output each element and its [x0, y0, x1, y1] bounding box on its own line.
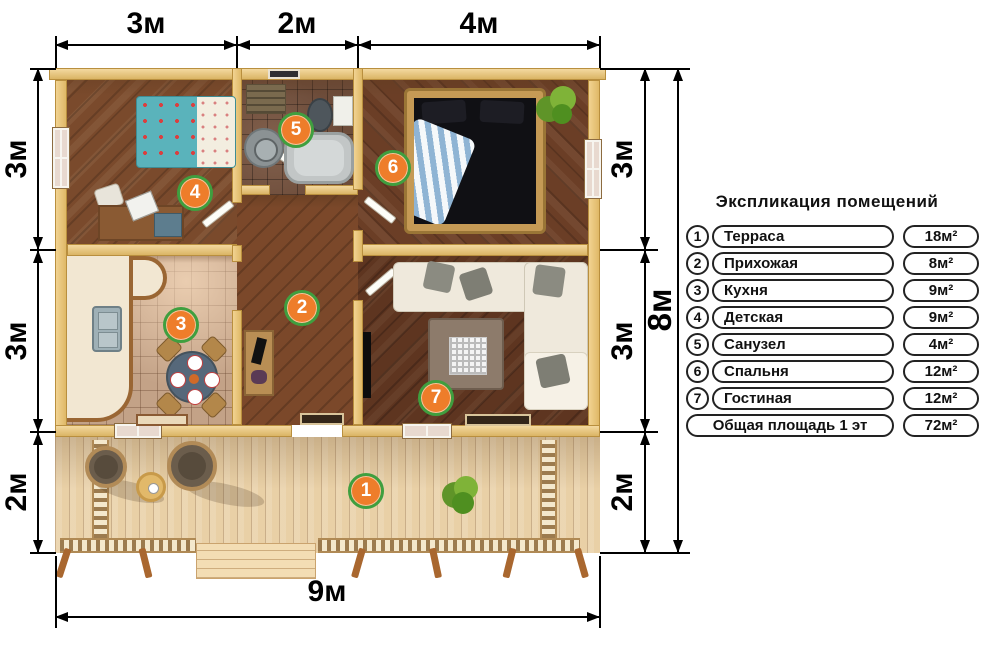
- wall-outer-bottom-right: [342, 425, 600, 437]
- plate: [187, 355, 203, 371]
- plate: [187, 389, 203, 405]
- wall-outer-bottom-left: [55, 425, 292, 437]
- legend-room-name: Терраса: [712, 225, 894, 248]
- wall-center-right-a: [353, 68, 363, 190]
- dining-table: [166, 351, 218, 403]
- dim-left-2m: [37, 433, 39, 552]
- coffee-table: [428, 318, 504, 390]
- sink-basin: [98, 312, 118, 330]
- dim-left-3m-b: [37, 251, 39, 431]
- dim-label-left-3m-a: 3м: [0, 140, 34, 179]
- legend-panel: Экспликация помещений 1 Терраса 18м² 2 П…: [686, 192, 982, 437]
- bathroom-vent: [268, 69, 300, 79]
- children-desk: [98, 205, 184, 241]
- legend-row-number: 2: [686, 252, 709, 275]
- wall-bathroom-bottom-b: [305, 185, 358, 195]
- room-badge-bedroom: 6: [375, 150, 411, 186]
- bathroom-shelf: [246, 84, 286, 114]
- dim-label-right-3m-a: 3м: [606, 140, 640, 179]
- legend-room-name: Спальня: [712, 360, 894, 383]
- double-bed-frame: [404, 88, 546, 234]
- dim-label-top-4m: 4м: [460, 7, 499, 41]
- terrace-steps: [196, 543, 316, 579]
- pillow: [479, 100, 524, 124]
- double-bed-bedding: [414, 98, 536, 224]
- legend-room-area: 4м²: [903, 333, 979, 356]
- dim-label-top-2m: 2м: [278, 7, 317, 41]
- dim-bottom-9m: [56, 616, 599, 618]
- printer: [154, 213, 182, 237]
- terrace-railing-right: [540, 440, 557, 538]
- legend-room-name: Санузел: [712, 333, 894, 356]
- tv: [363, 332, 371, 398]
- dim-label-top-3m: 3м: [127, 7, 166, 41]
- legend-row-number: 6: [686, 360, 709, 383]
- window-living-south: [403, 424, 451, 438]
- cloth: [251, 370, 267, 384]
- legend-row: 7 Гостиная 12м²: [686, 387, 982, 410]
- legend-row-number: 7: [686, 387, 709, 410]
- legend-room-area: 9м²: [903, 306, 979, 329]
- pillow: [421, 99, 466, 124]
- legend-title: Экспликация помещений: [686, 192, 968, 212]
- window-children-left: [53, 128, 69, 188]
- legend-row: 5 Санузел 4м²: [686, 333, 982, 356]
- wall-mid-right: [358, 244, 588, 256]
- room-badge-living: 7: [418, 380, 454, 416]
- dim-right-2m: [644, 433, 646, 552]
- legend-room-area: 9м²: [903, 279, 979, 302]
- floor-plan-page: 1 2 3 4 5 6 7 3м 2м 4м 3м 3м 2м 3м 3м 2м…: [0, 0, 1000, 649]
- legend-room-area: 12м²: [903, 387, 979, 410]
- legend-total-row: Общая площадь 1 эт 72м²: [686, 414, 982, 437]
- window-bedroom-right: [585, 140, 601, 198]
- room-badge-children: 4: [177, 175, 213, 211]
- children-bed: [136, 96, 236, 168]
- room-badge-bathroom: 5: [278, 112, 314, 148]
- plate: [204, 372, 220, 388]
- room-badge-hallway: 2: [284, 290, 320, 326]
- legend-row: 6 Спальня 12м²: [686, 360, 982, 383]
- sofa-pillow: [535, 353, 571, 389]
- dim-label-right-8m: 8м: [641, 289, 679, 332]
- toilet-tank: [333, 96, 353, 126]
- legend-total-area: 72м²: [903, 414, 979, 437]
- bedroom-plant: [534, 84, 580, 130]
- dim-label-right-3m-b: 3м: [606, 322, 640, 361]
- wall-center-right-c: [353, 300, 363, 425]
- plate: [170, 372, 186, 388]
- legend-room-name: Детская: [712, 306, 894, 329]
- legend-row-number: 4: [686, 306, 709, 329]
- wall-mid-left: [67, 244, 237, 256]
- legend-row: 4 Детская 9м²: [686, 306, 982, 329]
- dim-left-3m-a: [37, 69, 39, 249]
- bed-pillow-area: [197, 97, 236, 168]
- terrace-plant: [438, 474, 482, 518]
- legend-row: 3 Кухня 9м²: [686, 279, 982, 302]
- legend-room-area: 12м²: [903, 360, 979, 383]
- papasan-chair: [85, 446, 127, 488]
- sofa-pillow: [422, 260, 455, 293]
- striped-duvet: [414, 117, 477, 224]
- wall-outer-top: [49, 68, 606, 80]
- papasan-chair: [167, 441, 217, 491]
- dim-top-2m: [238, 44, 357, 46]
- sofa-pillow: [532, 264, 566, 298]
- living-doormat: [465, 414, 531, 426]
- wall-center-left-c: [232, 310, 242, 425]
- kitchen-doormat: [136, 414, 188, 426]
- washer-drum: [254, 138, 278, 162]
- cup: [148, 483, 159, 494]
- wall-center-right-b: [353, 230, 363, 262]
- phone: [251, 337, 267, 365]
- dim-label-left-2m: 2м: [0, 473, 34, 512]
- terrace-railing-bottom-left: [60, 538, 196, 553]
- dim-label-left-3m-b: 3м: [0, 322, 34, 361]
- room-badge-kitchen: 3: [163, 307, 199, 343]
- window-kitchen-south: [115, 424, 161, 438]
- table-ornament: [449, 337, 487, 375]
- dim-label-right-2m: 2м: [606, 473, 640, 512]
- legend-total-label: Общая площадь 1 эт: [686, 414, 894, 437]
- hallway-console: [244, 330, 274, 396]
- wall-shadow: [237, 195, 358, 208]
- legend-room-area: 18м²: [903, 225, 979, 248]
- legend-rows: 1 Терраса 18м² 2 Прихожая 8м² 3 Кухня 9м…: [686, 225, 982, 437]
- legend-row: 2 Прихожая 8м²: [686, 252, 982, 275]
- room-badge-terrace: 1: [348, 473, 384, 509]
- front-doormat: [300, 413, 344, 425]
- legend-room-name: Гостиная: [712, 387, 894, 410]
- dim-top-4m: [359, 44, 599, 46]
- sink-basin: [98, 332, 118, 348]
- legend-room-area: 8м²: [903, 252, 979, 275]
- legend-room-name: Прихожая: [712, 252, 894, 275]
- dim-right-3m-b: [644, 251, 646, 431]
- kitchen-sink: [92, 306, 122, 352]
- dim-top-3m: [56, 44, 236, 46]
- wall-outer-right: [588, 80, 600, 437]
- legend-row-number: 1: [686, 225, 709, 248]
- legend-row-number: 3: [686, 279, 709, 302]
- chair-cushion: [94, 455, 118, 479]
- center-dish: [189, 374, 199, 384]
- wall-center-left-b: [232, 245, 242, 262]
- legend-room-name: Кухня: [712, 279, 894, 302]
- legend-row: 1 Терраса 18м²: [686, 225, 982, 248]
- chair-cushion: [178, 452, 206, 480]
- dim-label-bottom-9m: 9м: [308, 575, 347, 609]
- terrace-side-table: [136, 472, 166, 502]
- legend-row-number: 5: [686, 333, 709, 356]
- dim-right-3m-a: [644, 69, 646, 249]
